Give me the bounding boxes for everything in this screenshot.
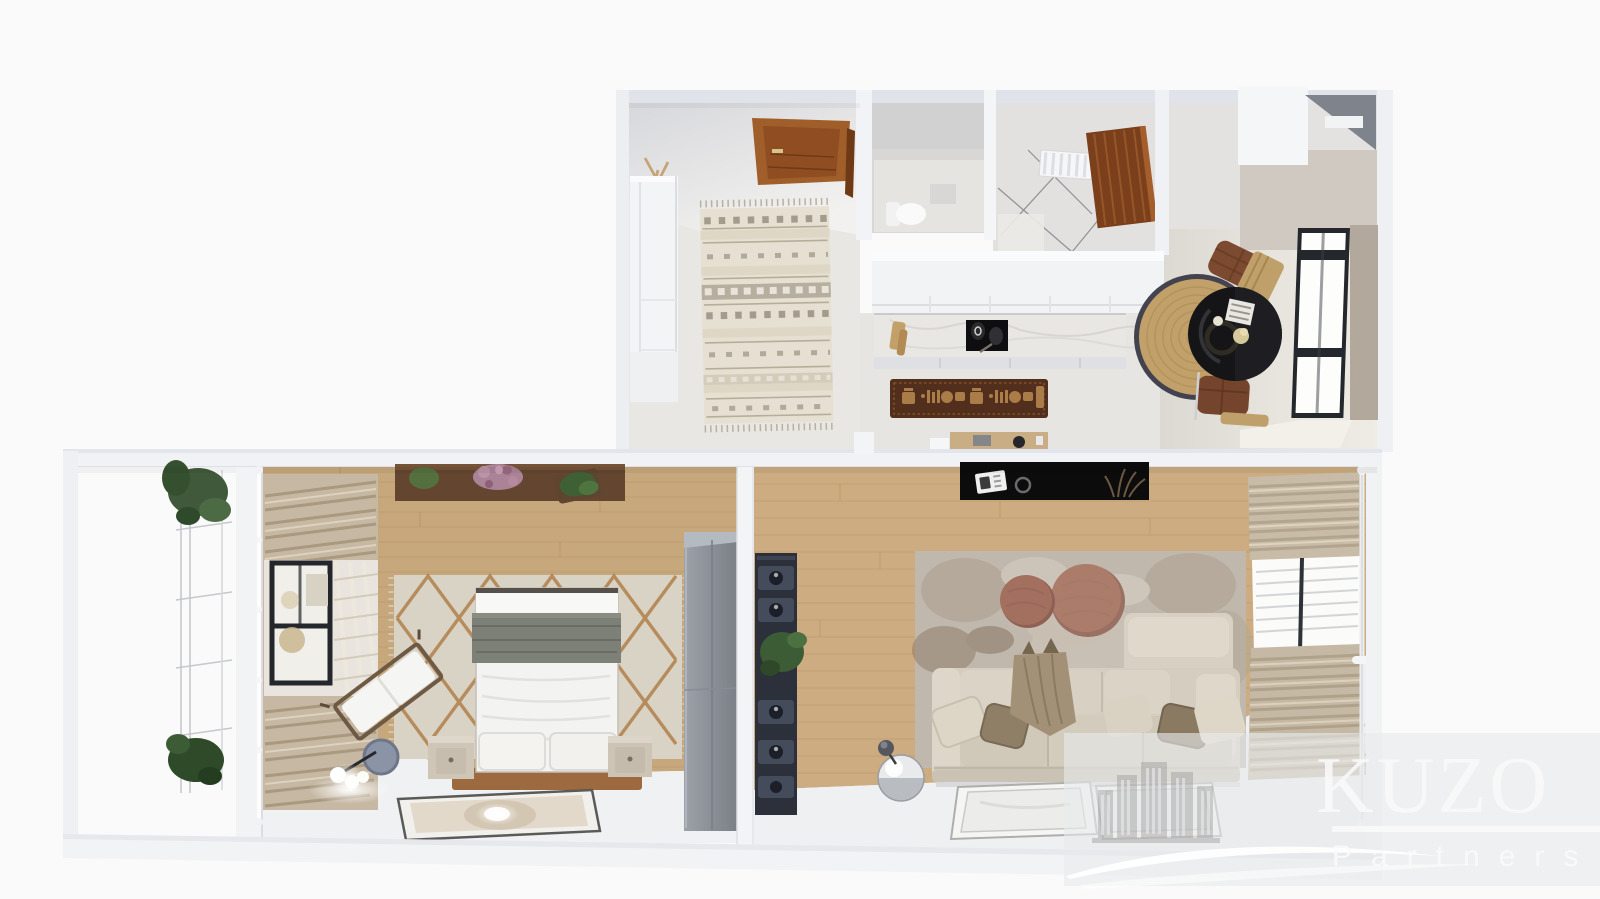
svg-text:Partners: Partners	[1332, 840, 1597, 873]
svg-text:KUZO: KUZO	[1316, 742, 1550, 830]
